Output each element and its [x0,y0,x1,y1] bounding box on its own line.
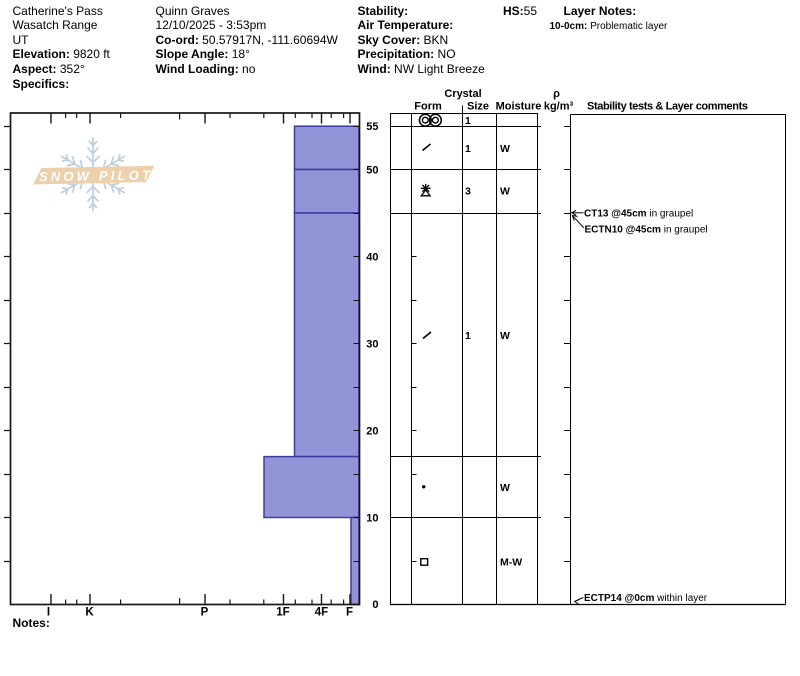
svg-text:W: W [500,330,510,342]
svg-text:1: 1 [465,143,471,155]
svg-text:Stability tests & Layer commen: Stability tests & Layer comments [587,101,748,113]
svg-text:Moisture: Moisture [496,101,542,113]
svg-text:W: W [500,482,510,494]
svg-text:W: W [500,143,510,155]
svg-text:Form: Form [414,101,442,113]
svg-text:40: 40 [366,252,378,264]
svg-text:CT13 @45cm in graupel: CT13 @45cm in graupel [584,208,693,219]
svg-text:50: 50 [366,165,378,177]
svg-text:ρ: ρ [553,88,560,100]
svg-text:20: 20 [366,426,378,438]
svg-text:W: W [500,186,510,198]
svg-text:ECTN10 @45cm in graupel: ECTN10 @45cm in graupel [585,224,708,235]
svg-text:30: 30 [366,339,378,351]
svg-text:1: 1 [465,115,471,127]
svg-text:10: 10 [366,513,378,525]
svg-text:I: I [47,607,50,619]
svg-text:F: F [346,607,353,619]
svg-text:M-W: M-W [500,557,522,569]
svg-text:55: 55 [366,121,378,133]
svg-text:1: 1 [465,330,471,342]
svg-text:1F: 1F [276,607,289,619]
svg-text:kg/m³: kg/m³ [544,101,574,113]
svg-text:0: 0 [372,599,378,611]
svg-text:3: 3 [465,186,471,198]
svg-text:4F: 4F [315,607,328,619]
svg-text:SNOW PILOT: SNOW PILOT [39,168,151,185]
svg-text:K: K [85,607,94,619]
svg-text:ECTP14 @0cm within layer: ECTP14 @0cm within layer [584,593,708,604]
svg-text:Crystal: Crystal [444,88,481,100]
svg-text:P: P [201,607,209,619]
svg-text:Size: Size [467,101,489,113]
